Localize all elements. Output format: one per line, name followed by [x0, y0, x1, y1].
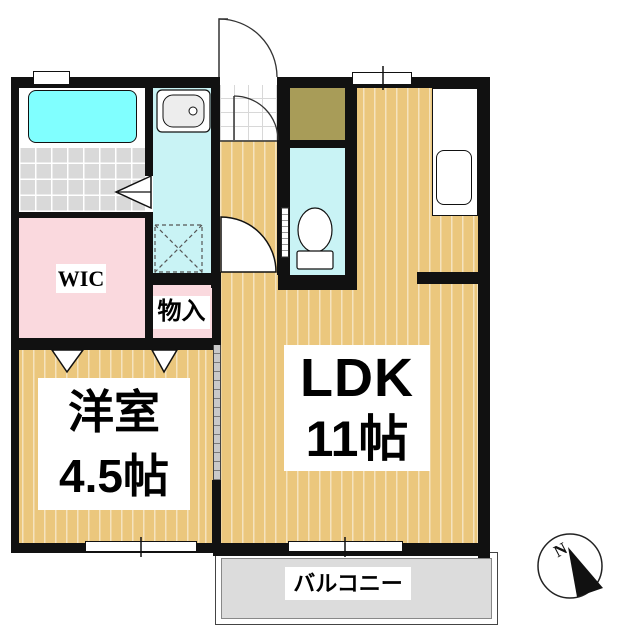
wall — [145, 77, 153, 176]
balcony-sliding-window — [288, 541, 403, 552]
wall — [277, 77, 290, 148]
storage-label: 物入 — [153, 296, 210, 329]
wall — [345, 77, 357, 290]
floor-plan: LDK 11帖 洋室 4.5帖 WIC 物入 バルコニー N — [0, 0, 640, 640]
wall — [11, 212, 153, 218]
bathtub — [28, 90, 137, 143]
entrance-door-panel — [219, 19, 228, 77]
balcony-label: バルコニー — [285, 567, 411, 600]
toilet-room-floor — [290, 148, 345, 275]
western-room-label: 洋室 4.5帖 — [38, 378, 190, 510]
wall — [211, 77, 220, 288]
wall — [11, 338, 221, 350]
western-room-window — [85, 541, 197, 552]
washroom-floor — [153, 85, 211, 273]
bathroom-tile-floor — [19, 147, 145, 212]
entrance-door-arc — [219, 19, 277, 77]
hallway-floor — [220, 141, 277, 272]
wic-label: WIC — [56, 264, 106, 293]
wall — [478, 77, 490, 558]
wall — [417, 272, 478, 284]
ldk-label: LDK 11帖 — [284, 345, 430, 471]
wall — [11, 77, 19, 553]
entrance-tile-floor — [220, 85, 278, 141]
kitchen-window — [352, 72, 412, 85]
shoe-closet — [290, 85, 345, 140]
compass-north-icon: N — [535, 531, 607, 605]
ldk-size: 11帖 — [284, 409, 430, 469]
wall — [145, 273, 212, 285]
western-room-name: 洋室 — [38, 380, 190, 444]
wall — [212, 272, 221, 345]
kitchen-sink — [436, 150, 472, 205]
wall — [278, 275, 357, 290]
toilet-folding-door — [281, 207, 289, 258]
sliding-door — [213, 345, 221, 480]
wall — [212, 480, 221, 543]
bathroom-window — [33, 71, 70, 85]
ldk-name: LDK — [284, 347, 430, 409]
western-room-size: 4.5帖 — [38, 444, 190, 508]
